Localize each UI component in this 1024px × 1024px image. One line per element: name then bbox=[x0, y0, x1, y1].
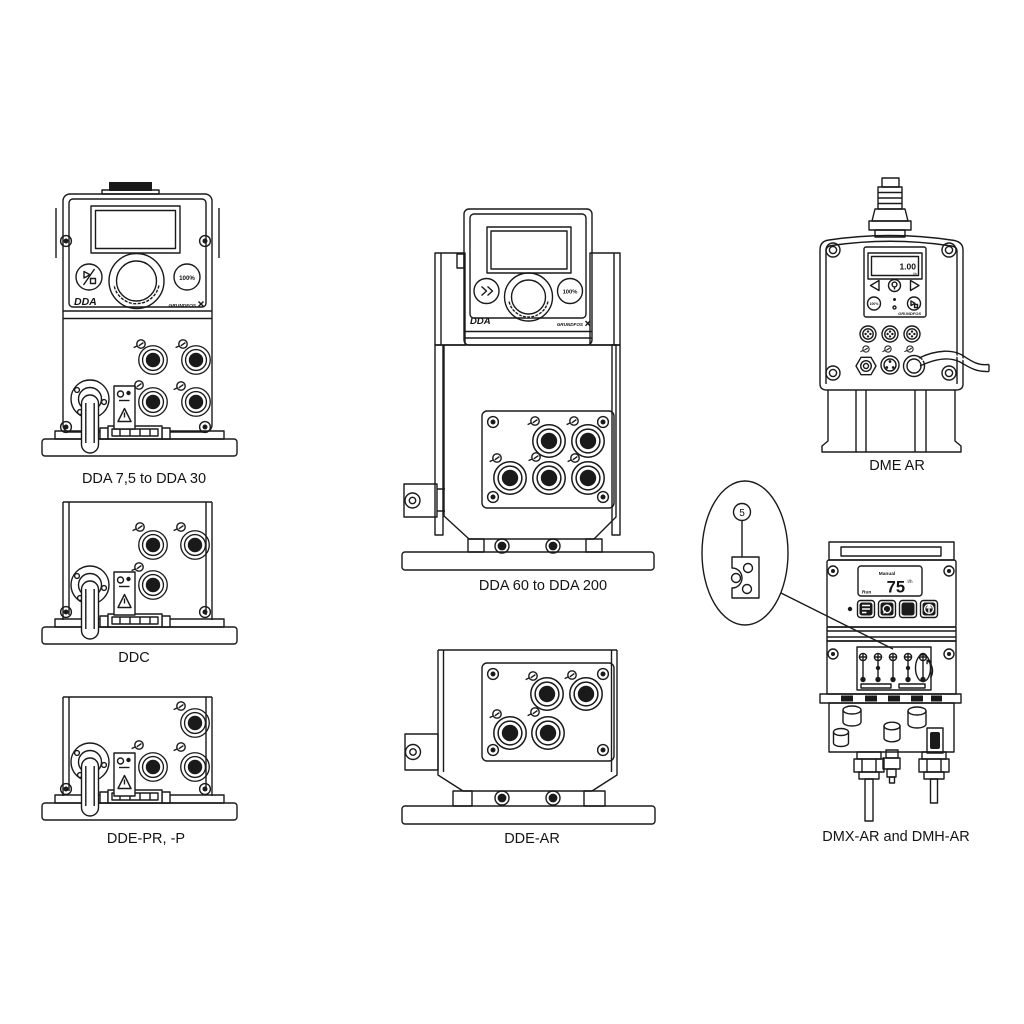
terminal-strip bbox=[857, 647, 933, 690]
blind-plug-icon bbox=[908, 707, 926, 728]
vent-screw-icon bbox=[174, 702, 186, 710]
vent-screw-icon bbox=[528, 708, 540, 716]
cable-gland-block bbox=[829, 703, 954, 753]
mid-band bbox=[827, 627, 956, 641]
corner-screw-icon bbox=[61, 236, 72, 247]
terminal-part-icon bbox=[732, 557, 759, 598]
figure-label: DDC bbox=[118, 650, 149, 666]
plate-screw-icon bbox=[488, 669, 499, 680]
figure-label: DME AR bbox=[869, 458, 925, 474]
vent-screw-icon bbox=[174, 743, 186, 751]
click-wheel-knob bbox=[505, 273, 553, 321]
vent-screw-icon bbox=[565, 671, 577, 679]
figure-label: DDE-PR, -P bbox=[107, 831, 185, 847]
base-screw-icon bbox=[546, 539, 560, 553]
hundred-percent-button: 100% bbox=[174, 264, 200, 290]
m12-connector-icon bbox=[494, 462, 526, 494]
top-cover bbox=[829, 542, 954, 560]
plate-screw-icon bbox=[488, 417, 499, 428]
valve-stub bbox=[404, 484, 445, 517]
drain-tube bbox=[71, 743, 109, 816]
arrow-right-button bbox=[911, 281, 920, 291]
m12-connector-icon bbox=[533, 462, 565, 494]
click-wheel-knob bbox=[109, 254, 164, 309]
hundred-percent-button: 100% bbox=[558, 279, 583, 304]
vent-screw-icon bbox=[176, 340, 188, 348]
plate-screw-icon bbox=[488, 745, 499, 756]
cable-gland-right bbox=[919, 752, 949, 803]
arrow-left-button bbox=[871, 281, 880, 291]
brand-logo: GRUNDFOS bbox=[169, 303, 197, 309]
menu-button bbox=[858, 601, 875, 618]
m12-connector-icon bbox=[531, 678, 563, 710]
m12-connector-icon bbox=[181, 531, 210, 560]
svg-text:100%: 100% bbox=[563, 290, 578, 296]
base-screw-icon bbox=[495, 791, 509, 805]
m12-connector-icon bbox=[139, 346, 168, 375]
m12-connector-icon bbox=[182, 388, 211, 417]
vent-screw-icon bbox=[904, 346, 913, 352]
callout-number: 5 bbox=[739, 508, 745, 519]
callout-bubble: 5 bbox=[702, 481, 788, 625]
base-screw-icon bbox=[495, 539, 509, 553]
connector-row bbox=[860, 326, 920, 342]
menu-button bbox=[889, 280, 901, 292]
display-value: 75 bbox=[887, 579, 905, 597]
svg-text:100%: 100% bbox=[179, 275, 195, 282]
start-stop-button bbox=[908, 297, 921, 310]
control-panel: 1.00 l/h 100% GRUNDFOS bbox=[864, 247, 926, 317]
drain-tube bbox=[71, 380, 109, 453]
blind-plug-icon bbox=[843, 706, 861, 726]
vent-screw-icon bbox=[568, 454, 580, 462]
vent-screw-icon bbox=[174, 523, 186, 531]
square-socket bbox=[927, 728, 943, 753]
warning-label-icon bbox=[114, 386, 135, 429]
display bbox=[91, 206, 180, 253]
vent-screw-icon bbox=[490, 710, 502, 718]
led-icon bbox=[893, 298, 896, 301]
mounting-plate bbox=[42, 426, 237, 456]
plate-screw-icon bbox=[598, 745, 609, 756]
figure-dde-pr-p: DDE-PR, -P bbox=[42, 697, 237, 847]
m12-connector-icon bbox=[533, 425, 565, 457]
led-icon bbox=[848, 607, 852, 611]
display-status: Run bbox=[862, 590, 871, 596]
connector-plate bbox=[482, 411, 614, 508]
pump-body bbox=[438, 650, 617, 791]
connector-plate bbox=[482, 663, 614, 761]
pump-body bbox=[820, 236, 963, 391]
vent-screw-icon bbox=[132, 563, 144, 571]
sensor-plug-center bbox=[883, 750, 900, 783]
figure-label: DMX-AR and DMH-AR bbox=[822, 829, 969, 845]
vent-screw-icon bbox=[567, 417, 579, 425]
m12-connector-icon bbox=[572, 425, 604, 457]
valve-stub bbox=[405, 734, 438, 770]
menu-button bbox=[474, 279, 499, 304]
down-button bbox=[900, 601, 917, 618]
display-value: 1.00 bbox=[899, 262, 916, 272]
vent-screw-icon bbox=[490, 454, 502, 462]
brand-logo: GRUNDFOS bbox=[898, 311, 921, 316]
blind-plug-icon bbox=[834, 729, 849, 747]
figure-dme-ar: 1.00 l/h 100% GRUNDFOS bbox=[820, 178, 989, 474]
corner-screw-icon bbox=[61, 607, 72, 618]
plate-screw-icon bbox=[488, 492, 499, 503]
corner-screw-icon bbox=[200, 236, 211, 247]
m12-connector-icon bbox=[494, 717, 526, 749]
figure-dda-60-to-dda-200: 100% DDA GRUNDFOS bbox=[402, 209, 654, 594]
start-stop-button bbox=[76, 264, 102, 290]
figure-label: DDA 7,5 to DDA 30 bbox=[82, 471, 206, 487]
m12-connector-icon bbox=[181, 753, 210, 782]
vent-screw-icon bbox=[882, 346, 891, 352]
terminal-pin-icon bbox=[919, 653, 926, 682]
m12-connector-icon bbox=[139, 531, 168, 560]
warning-label-icon bbox=[114, 572, 135, 615]
side-flange bbox=[590, 253, 620, 345]
double-chevron-icon bbox=[482, 287, 493, 296]
brand-logo: GRUNDFOS bbox=[557, 322, 584, 327]
vent-screw-icon bbox=[526, 672, 538, 680]
figure-ddc: DDC bbox=[42, 502, 237, 666]
round-connector bbox=[881, 356, 899, 374]
terminal-pin-icon bbox=[889, 653, 896, 682]
m12-connector-icon bbox=[139, 571, 168, 600]
up-button bbox=[921, 601, 938, 618]
vent-cap bbox=[869, 178, 911, 237]
display-unit: l/h bbox=[908, 579, 913, 585]
mounting-plate bbox=[42, 790, 237, 820]
svg-text:100%: 100% bbox=[870, 302, 879, 306]
led-icon bbox=[893, 306, 896, 309]
hundred-percent-button: 100% bbox=[868, 297, 881, 310]
blind-plug-icon bbox=[884, 722, 900, 742]
model-logo: DDA bbox=[470, 316, 491, 327]
vent-screw-icon bbox=[174, 382, 186, 390]
figure-dda-7-5-to-dda-30: 100% DDA GRUNDFOS DDA 7,5 to DDA 30 bbox=[42, 182, 237, 487]
m12-connector-icon bbox=[139, 388, 168, 417]
brand-mark-icon bbox=[199, 302, 204, 307]
m12-connector-icon bbox=[572, 462, 604, 494]
figure-label: DDA 60 to DDA 200 bbox=[479, 578, 607, 594]
vent-screw-icon bbox=[133, 523, 145, 531]
m12-connector-icon bbox=[139, 753, 168, 782]
display-unit: l/h bbox=[913, 272, 917, 276]
pump-overview-diagram: 100% DDA GRUNDFOS DDA 7,5 to DDA 30 bbox=[0, 0, 1024, 1024]
m12-connector-icon bbox=[182, 346, 211, 375]
terminal-pin-icon bbox=[859, 653, 866, 682]
warning-label-icon bbox=[114, 753, 135, 796]
display bbox=[487, 227, 571, 273]
cable-gland-left bbox=[854, 752, 884, 821]
m12-connector-icon bbox=[532, 717, 564, 749]
figure-label: DDE-AR bbox=[504, 831, 560, 847]
display: Manual 75 l/h Run bbox=[858, 566, 922, 597]
base-screw-icon bbox=[546, 791, 560, 805]
button-row bbox=[858, 601, 938, 618]
vent-screw-icon bbox=[528, 417, 540, 425]
corner-screw-icon bbox=[61, 784, 72, 795]
rating-print bbox=[899, 684, 925, 688]
rating-print bbox=[861, 684, 891, 688]
figure-dmx-ar-dmh-ar: Manual 75 l/h Run bbox=[820, 542, 970, 845]
plate-screw-icon bbox=[598, 669, 609, 680]
display-mode: Manual bbox=[879, 571, 896, 577]
drain-tube bbox=[71, 566, 109, 639]
corner-screw-icon bbox=[200, 784, 211, 795]
plate-screw-icon bbox=[598, 417, 609, 428]
base-plate bbox=[402, 806, 655, 824]
pedestal bbox=[822, 390, 961, 452]
plate-screw-icon bbox=[598, 492, 609, 503]
m12-connector-icon bbox=[570, 678, 602, 710]
cable bbox=[931, 779, 938, 803]
vent-screw-icon bbox=[860, 346, 869, 352]
side-flange bbox=[435, 253, 465, 345]
cable-gland-hex bbox=[856, 357, 876, 374]
control-panel: 100% DDA GRUNDFOS bbox=[69, 199, 206, 309]
mounting-plate bbox=[42, 614, 237, 644]
m12-connector-icon bbox=[181, 709, 210, 738]
vent-screw-icon bbox=[132, 741, 144, 749]
corner-screw-icon bbox=[200, 607, 211, 618]
base-plate bbox=[402, 552, 654, 570]
model-logo: DDA bbox=[74, 296, 97, 308]
cable bbox=[865, 779, 873, 821]
figure-dde-ar: DDE-AR bbox=[402, 650, 655, 847]
control-panel: 100% DDA GRUNDFOS bbox=[464, 209, 592, 345]
start-stop-button bbox=[879, 601, 896, 618]
vent-screw-icon bbox=[134, 340, 146, 348]
